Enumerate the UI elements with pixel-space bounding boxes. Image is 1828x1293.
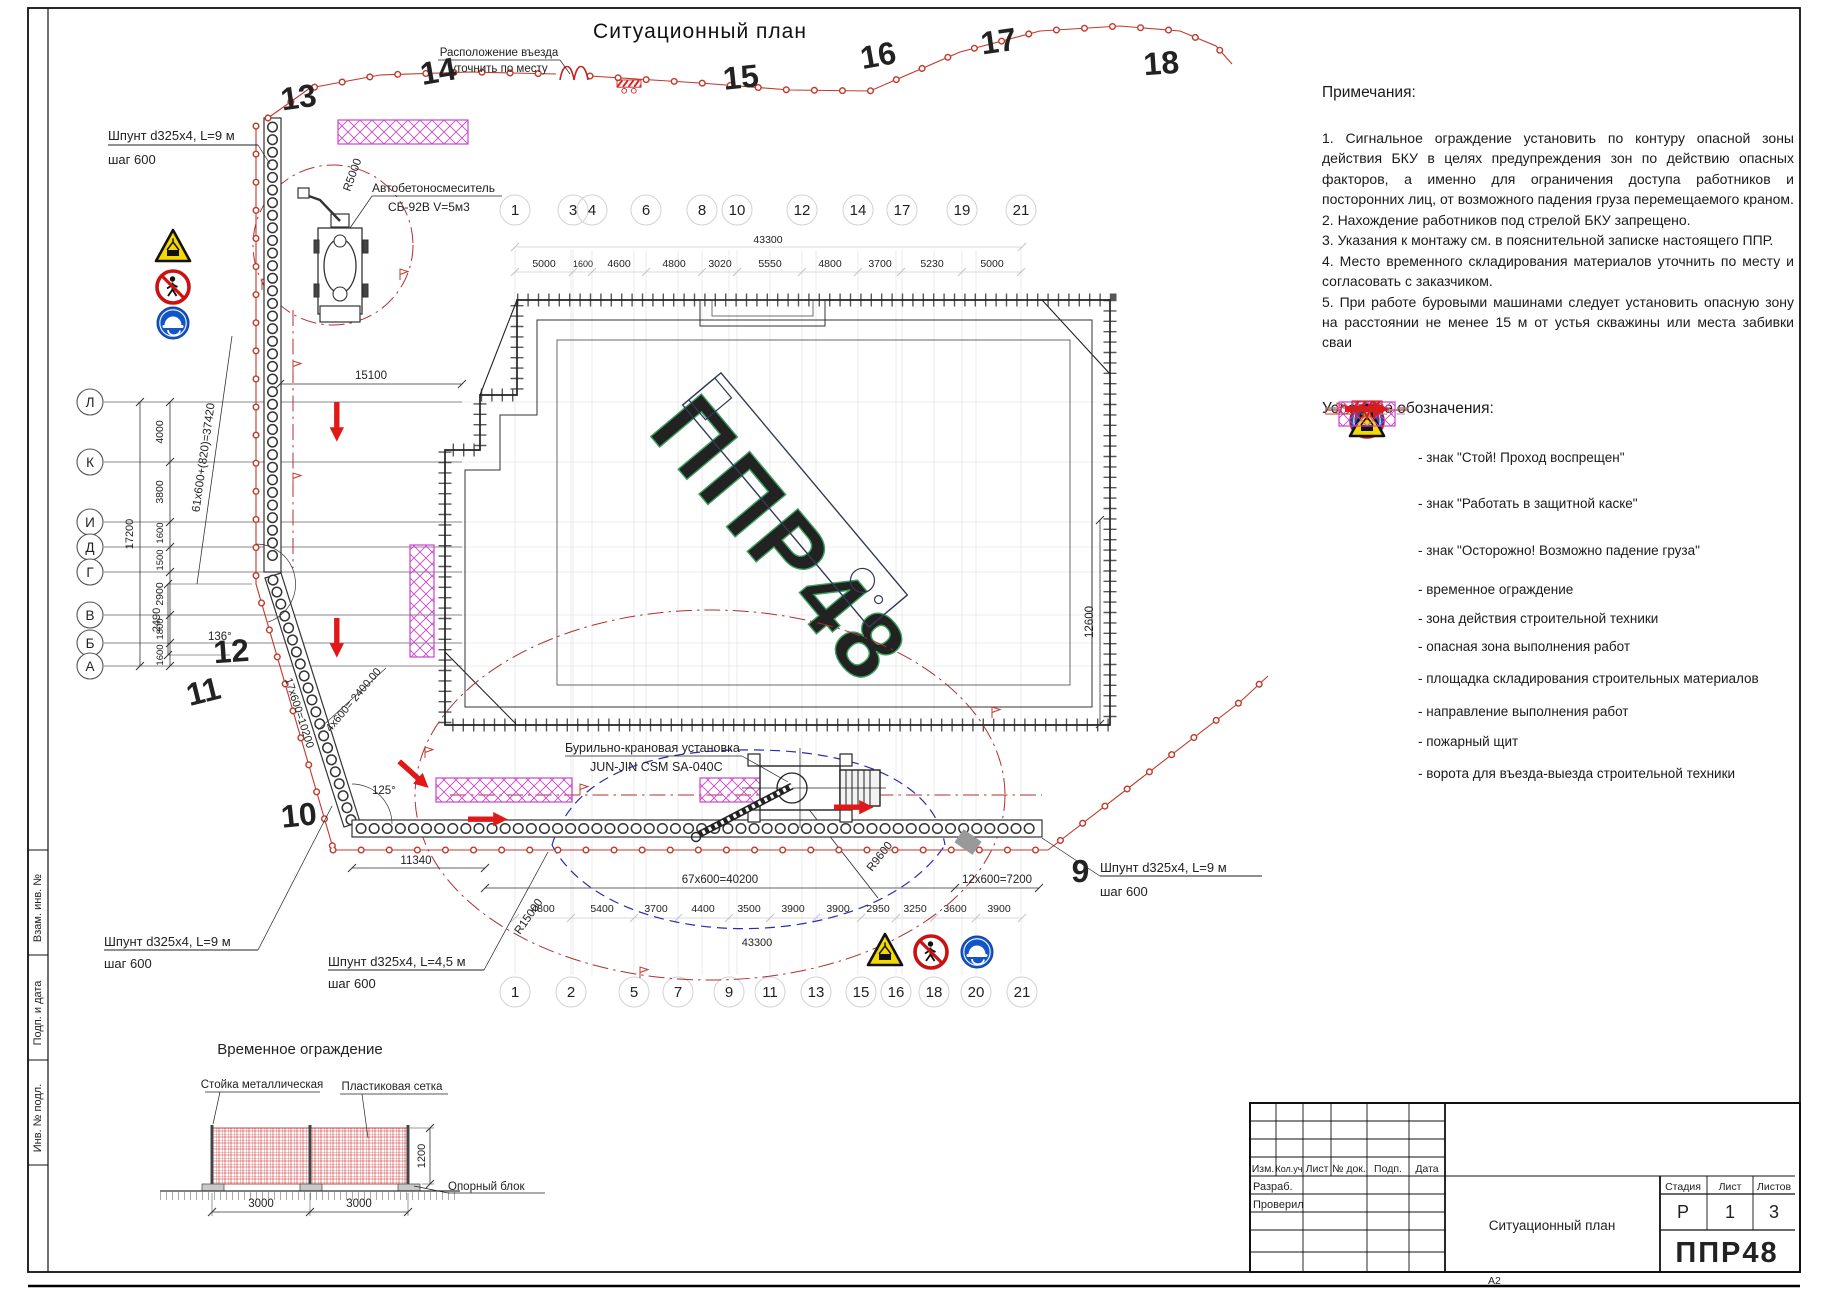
fence-detail-title: Временное ограждение <box>217 1041 382 1058</box>
fence-detail-post-label: Стойка металлическая <box>201 1079 323 1091</box>
tb-row-razrab: Разраб. <box>1253 1181 1293 1193</box>
dim-label: 3500 <box>737 903 761 915</box>
legend-label: - площадка складирования строительных ма… <box>1418 671 1759 686</box>
work-direction-arrow-icon <box>330 402 344 442</box>
dim-top-total: 43300 <box>753 234 782 246</box>
danger-flag-icon <box>400 269 408 280</box>
legend-label: - зона действия строительной техники <box>1418 611 1658 626</box>
axis-bubble: Г <box>86 565 94 580</box>
fence-number: 11 <box>183 670 225 713</box>
dim-label: 3700 <box>644 903 668 915</box>
axis-bubble: 10 <box>729 202 746 219</box>
legend-label: - пожарный щит <box>1418 734 1518 749</box>
dim-label: 1600 <box>155 644 166 665</box>
note-item: 3. Указания к монтажу см. в пояснительно… <box>1322 230 1794 250</box>
dim-label: 1500 <box>155 549 166 570</box>
tb-stage-value: Р <box>1677 1202 1689 1222</box>
storage-area <box>410 545 434 657</box>
pile-left-label-2: шаг 600 <box>108 152 156 167</box>
fence-detail: Временное ограждение Стойка металлическа… <box>160 1041 545 1216</box>
dim-label: 4800 <box>662 258 686 270</box>
truck-label-1: Автобетоносмеситель <box>372 181 495 195</box>
axis-bubble: 3 <box>569 202 577 219</box>
axis-bubble: 9 <box>725 984 733 1001</box>
page-title: Ситуационный план <box>593 20 807 44</box>
axis-bubble: 6 <box>642 202 650 219</box>
grid-faint-lines <box>104 250 1110 975</box>
tb-col-list: Лист <box>1306 1163 1329 1175</box>
dim-label: 3250 <box>903 903 927 915</box>
axis-bubble: 15 <box>853 984 870 1001</box>
dim-label: 5230 <box>920 258 944 270</box>
axis-bubble: К <box>86 455 94 470</box>
legend-row: - площадка складирования строительных ма… <box>1322 660 1808 696</box>
legend-label: - знак "Стой! Проход воспрещен" <box>1418 450 1625 465</box>
angle-bottom-label: 125° <box>372 785 396 797</box>
dim-label: 1600 <box>155 522 166 543</box>
gate-icon <box>560 67 588 81</box>
dim-label: 3800 <box>154 480 166 504</box>
axis-bubble: А <box>85 659 94 674</box>
fence-number: 10 <box>279 795 318 835</box>
bottom-dimension-block: 4800 5400 3700 4400 3500 3900 3900 2950 … <box>511 903 1026 949</box>
pile-bl-label-1: Шпунт d325x4, L=9 м <box>104 934 231 949</box>
dim-bottom-total: 43300 <box>742 937 773 949</box>
dim-label: 2900 <box>154 582 166 606</box>
axis-bubble: 1 <box>511 202 519 219</box>
pile-left-label-1: Шпунт d325x4, L=9 м <box>108 128 235 143</box>
fence-number: 14 <box>417 50 459 92</box>
tb-col-data: Дата <box>1415 1163 1438 1175</box>
note-item: 4. Место временного складирования матери… <box>1322 251 1794 292</box>
fence-detail-block-label: Опорный блок <box>448 1181 526 1193</box>
fire-shield-icon <box>617 80 641 93</box>
notes-heading: Примечания: <box>1322 84 1794 102</box>
fence-number: 13 <box>278 77 318 118</box>
legend-row: - знак "Осторожно! Возможно падение груз… <box>1322 526 1808 574</box>
pile-bc-label-2: шаг 600 <box>328 976 376 991</box>
legend-label: - опасная зона выполнения работ <box>1418 639 1630 654</box>
axis-bubble: 1 <box>511 984 519 1001</box>
fence-number: 18 <box>1142 44 1180 82</box>
dim-label: 3900 <box>781 903 805 915</box>
hard-hat-sign-icon <box>157 307 189 339</box>
axis-bubble: 2 <box>567 984 575 1001</box>
tb-col-ndok: № док. <box>1332 1163 1366 1175</box>
axis-bubble: В <box>85 608 94 623</box>
crane-label-2: JUN-JIN CSM SA-040C <box>590 760 723 774</box>
tb-sheets-label: Листов <box>1757 1181 1792 1193</box>
axis-bubble: Л <box>86 395 95 410</box>
danger-flag-icon <box>580 784 588 795</box>
falling-load-sign-icon <box>156 230 190 261</box>
detail-dim-height: 1200 <box>416 1144 428 1168</box>
frame-label-vzam: Взам. инв. № <box>32 853 44 963</box>
dim-11340: 11340 <box>400 855 431 867</box>
pile-right-label-2: шаг 600 <box>1100 884 1148 899</box>
legend-panel: Условные обозначения: - знак "Стой! Прох… <box>1322 400 1808 790</box>
no-pedestrian-sign-icon <box>915 936 947 968</box>
radius-truck-label: R5000 <box>342 157 365 193</box>
axis-bubble: Д <box>85 540 94 555</box>
detail-dim-width1: 3000 <box>248 1198 274 1210</box>
dim-label: 3900 <box>987 903 1011 915</box>
axis-bubble: 4 <box>588 202 596 219</box>
dim-label: 4600 <box>607 258 631 270</box>
frame-label-podp: Подп. и дата <box>32 958 44 1068</box>
detail-dim-width2: 3000 <box>346 1198 372 1210</box>
pile-bl-label-2: шаг 600 <box>104 956 152 971</box>
dim-left-total: 17200 <box>124 519 136 550</box>
dim-label: 1600 <box>573 259 593 269</box>
dim-label: 4400 <box>691 903 715 915</box>
axis-bubble: 8 <box>698 202 706 219</box>
hard-hat-sign-icon <box>961 936 993 968</box>
dim-2490: 2490 <box>151 608 163 632</box>
work-direction-arrow-icon <box>394 756 433 793</box>
axis-bubble: 12 <box>794 202 811 219</box>
axis-bubble: 13 <box>808 984 825 1001</box>
legend-label: - знак "Осторожно! Возможно падение груз… <box>1418 543 1700 558</box>
dim-run-right: 12x600=7200 <box>962 874 1032 886</box>
legend-row: - ворота для въезда-выезда строительной … <box>1322 756 1808 790</box>
no-pedestrian-sign-icon <box>157 271 189 303</box>
axis-bubble: 17 <box>894 202 911 219</box>
legend-row: - знак "Работать в защитной каске" <box>1322 480 1808 526</box>
dim-label: 4000 <box>154 420 166 444</box>
note-item: 5. При работе буровыми машинами следует … <box>1322 292 1794 353</box>
fence-number: 17 <box>978 21 1018 62</box>
tb-col-izm: Изм. <box>1252 1163 1275 1175</box>
pile-right-label-1: Шпунт d325x4, L=9 м <box>1100 860 1227 875</box>
dim-label: 4800 <box>818 258 842 270</box>
top-axis-bubbles: 1 3 4 6 8 10 12 14 17 19 21 <box>500 195 1036 225</box>
dim-left-run: 61x600+(820)=37420 <box>190 402 217 513</box>
note-item: 1. Сигнальное ограждение установить по к… <box>1322 128 1794 210</box>
format-label: А2 <box>1488 1275 1501 1287</box>
note-item: 2. Нахождение работников под стрелой БКУ… <box>1322 210 1794 230</box>
legend-row: - опасная зона выполнения работ <box>1322 632 1808 660</box>
title-block: Изм. Кол.уч Лист № док. Подп. Дата Разра… <box>1250 1103 1800 1272</box>
danger-flag-icon <box>425 747 433 758</box>
danger-flag-icon <box>640 967 648 978</box>
legend-row: - зона действия строительной техники <box>1322 604 1808 632</box>
bottom-axis-bubbles: 1 2 5 7 9 11 13 15 16 18 20 21 <box>500 977 1037 1007</box>
safety-signs-left <box>156 230 190 339</box>
axis-bubble: 21 <box>1014 984 1031 1001</box>
tb-stage-label: Стадия <box>1665 1181 1701 1193</box>
danger-flag-icon <box>293 473 301 484</box>
safety-signs-bottom <box>868 934 993 968</box>
fence-number: 9 <box>1071 853 1090 890</box>
watermark-logo-group: ППР48 <box>631 376 931 704</box>
axis-bubble: 11 <box>762 984 778 1001</box>
fence-number: 16 <box>857 34 898 76</box>
dim-run-bottom: 67x600=40200 <box>682 874 758 886</box>
gate-icon <box>1322 400 1412 422</box>
axis-bubble: 20 <box>968 984 985 1001</box>
fence-detail-mesh-label: Пластиковая сетка <box>342 1081 443 1093</box>
tb-col-podp: Подп. <box>1374 1163 1402 1175</box>
axis-bubble: 7 <box>674 984 682 1001</box>
tb-doc-title: Ситуационный план <box>1489 1218 1616 1233</box>
dim-run-diag-short: 4x600= 2400.00 <box>324 666 384 734</box>
legend-label: - временное ограждение <box>1418 582 1573 597</box>
tb-col-koluch: Кол.уч <box>1276 1164 1303 1174</box>
top-dimension-block: 43300 5000 1600 4600 4800 3020 5550 4800… <box>511 234 1026 276</box>
work-direction-arrow-icon <box>330 618 344 658</box>
dim-12600: 12600 <box>1084 606 1096 638</box>
axis-bubble: И <box>85 515 95 530</box>
radius-crane-label: R9600 <box>865 840 895 874</box>
tb-sheet-value: 1 <box>1725 1202 1735 1222</box>
crane-reach-zone: R9600 <box>552 750 945 929</box>
frame-label-inv: Инв. № подл. <box>32 1063 44 1173</box>
dim-label: 5000 <box>532 258 556 270</box>
dim-label: 5400 <box>590 903 614 915</box>
fence-number: 12 <box>212 632 250 670</box>
legend-row: - временное ограждение <box>1322 574 1808 604</box>
dim-label: 5000 <box>980 258 1004 270</box>
legend-row: - направление выполнения работ <box>1322 696 1808 726</box>
axis-bubble: 14 <box>850 202 867 219</box>
sheet-pile-walls <box>264 118 1042 837</box>
entrance-note-2: уточнить по месту <box>450 63 548 75</box>
tb-sheet-label: Лист <box>1719 1181 1742 1193</box>
dim-label: 5550 <box>758 258 782 270</box>
dim-label: 3020 <box>708 258 732 270</box>
notes-panel: Примечания: 1. Сигнальное ограждение уст… <box>1322 84 1794 353</box>
company-logo: ППР48 <box>1675 1237 1778 1269</box>
axis-bubble: 16 <box>888 984 905 1001</box>
axis-bubble: 18 <box>926 984 943 1001</box>
danger-flag-icon <box>992 707 1000 718</box>
danger-zones: R15000 R5000 <box>253 157 1042 980</box>
axis-bubble: 5 <box>630 984 638 1001</box>
axis-bubble: 21 <box>1013 202 1030 219</box>
legend-label: - знак "Работать в защитной каске" <box>1418 496 1638 511</box>
truck-label-2: СБ-92В V=5м3 <box>388 200 470 214</box>
tb-sheets-value: 3 <box>1769 1202 1779 1222</box>
tb-row-proveril: Проверил <box>1253 1199 1304 1211</box>
storage-area <box>338 120 468 144</box>
storage-area <box>436 778 572 802</box>
axis-bubble: Б <box>86 636 95 651</box>
entrance-note-1: Расположение въезда <box>440 47 559 59</box>
legend-label: - ворота для въезда-выезда строительной … <box>1418 766 1735 781</box>
fence-number: 15 <box>721 57 760 97</box>
pile-bc-label-1: Шпунт d325x4, L=4,5 м <box>328 954 466 969</box>
dim-label: 2950 <box>866 903 890 915</box>
legend-label: - направление выполнения работ <box>1418 704 1628 719</box>
dim-label: 3700 <box>868 258 892 270</box>
drawing-sheet: ППР48 43300 5000 1600 4600 4800 3020 555… <box>0 0 1828 1293</box>
dim-15100: 15100 <box>355 370 387 382</box>
radius-danger-label: R15000 <box>513 897 546 937</box>
legend-row: - пожарный щит <box>1322 726 1808 756</box>
crane-label-1: Бурильно-крановая установка <box>565 741 740 755</box>
concrete-mixer-truck <box>298 188 368 322</box>
watermark-logo: ППР48 <box>631 376 931 704</box>
danger-flag-icon <box>293 361 301 372</box>
axis-bubble: 19 <box>954 202 971 219</box>
